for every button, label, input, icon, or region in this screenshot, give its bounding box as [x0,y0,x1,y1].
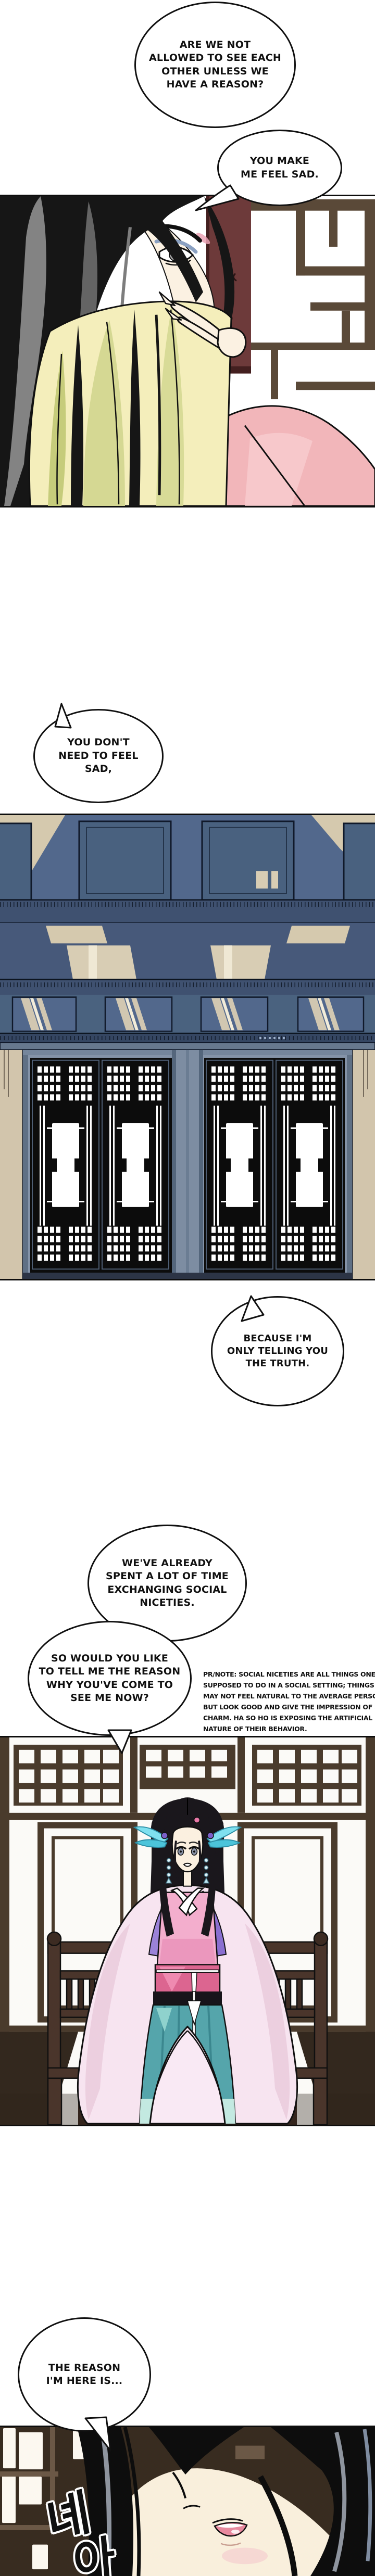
bubble-tail [78,2415,120,2454]
speech-bubble-reason-im-here: THE REASON I'M HERE IS... [18,2317,151,2432]
bubble-text-line: ONLY TELLING YOU [227,1345,328,1357]
bubble-text-line: TO TELL ME THE REASON [39,1665,181,1678]
bubble-tail [48,702,81,729]
panel1-artwork [0,196,375,506]
bubble-text-line: YOU DON'T [67,736,130,749]
bubble-text-line: I'M HERE IS... [46,2375,123,2388]
bubble-text-line: ARE WE NOT [180,39,251,52]
panel-hall-doors [0,814,375,1280]
lattice-doors [0,1043,375,1279]
pink-hair-clip [194,1817,200,1823]
bubble-text-line: SEE ME NOW? [70,1692,149,1705]
webtoon-page: ARE WE NOT ALLOWED TO SEE EACH OTHER UNL… [0,0,375,2576]
bubble-text-line: SPENT A LOT OF TIME [106,1570,229,1583]
bubble-tail [235,1294,272,1325]
sfx-korean-glyph: 아 [70,2520,118,2576]
bubble-text-line: THE TRUTH. [246,1357,310,1370]
bubble-text-line: OTHER UNLESS WE [161,65,269,78]
note-line: MAY NOT FEEL NATURAL TO THE AVERAGE PERS… [203,1691,374,1702]
speech-bubble-are-we-not: ARE WE NOT ALLOWED TO SEE EACH OTHER UNL… [134,2,296,128]
note-line: SUPPOSED TO DO IN A SOCIAL SETTING; THIN… [203,1680,374,1691]
bubble-text-line: WHY YOU'VE COME TO [46,1679,173,1692]
speech-bubble-reason-question: SO WOULD YOU LIKE TO TELL ME THE REASON … [28,1621,192,1736]
bubble-text-line: ME FEEL SAD. [241,168,319,181]
bubble-tail [102,1727,139,1756]
bubble-text-line: THE REASON [48,2362,121,2375]
bubble-text-line: SO WOULD YOU LIKE [51,1652,168,1665]
bubble-text-line: ALLOWED TO SEE EACH [149,52,281,65]
bubble-text-line: NICETIES. [140,1596,195,1609]
bubble-text-line: YOU MAKE [250,155,309,168]
bubble-text-line: SAD, [85,763,112,776]
panel-woman-covering-face [0,195,375,507]
coffered-ceiling [0,815,375,1043]
panel3-artwork [0,1737,375,2125]
bubble-tail [192,183,244,213]
mouth [184,1863,191,1867]
note-line: BUT LOOK GOOD AND GIVE THE IMPRESSION OF… [203,1702,374,1712]
speech-bubble-telling-truth: BECAUSE I'M ONLY TELLING YOU THE TRUTH. [211,1296,344,1406]
bubble-text-line: BECAUSE I'M [243,1333,311,1345]
bubble-text-line: HAVE A REASON? [167,78,264,91]
bubble-text-line: WE'VE ALREADY [122,1557,213,1570]
panel-seated-woman [0,1736,375,2126]
bubble-text-line: NEED TO FEEL [58,750,138,763]
translator-note: PR/NOTE: SOCIAL NICETIES ARE ALL THINGS … [203,1669,374,1734]
bubble-text-line: EXCHANGING SOCIAL [107,1583,227,1596]
note-line: CHARM. HA SO HO IS EXPOSING THE ARTIFICI… [203,1712,374,1723]
note-line: NATURE OF THEIR BEHAVIOR. [203,1723,374,1734]
note-line: PR/NOTE: SOCIAL NICETIES ARE ALL THINGS … [203,1669,374,1680]
panel2-artwork [0,815,375,1279]
